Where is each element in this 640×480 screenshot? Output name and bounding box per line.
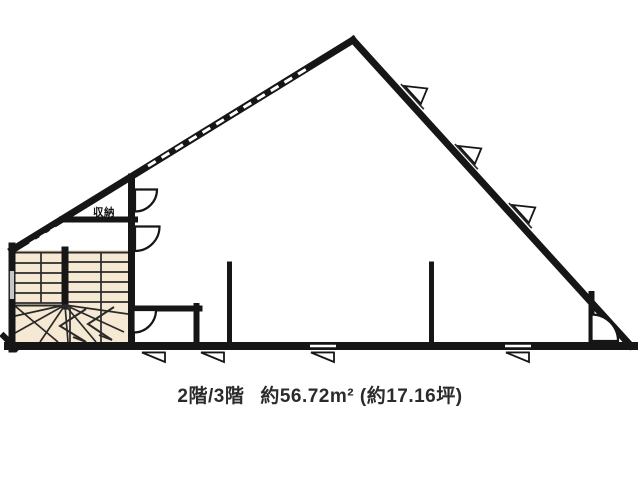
vent-triangle <box>509 192 544 228</box>
closet-label: 収納 <box>93 206 115 219</box>
caption: 2階/3階約56.72m² (約17.16坪) <box>0 381 640 408</box>
vent-triangle <box>401 73 436 109</box>
window-marker <box>311 353 334 363</box>
door-arc-right-room <box>592 315 619 342</box>
caption-floor: 2階/3階 <box>177 386 244 407</box>
door-arc-nook <box>134 310 157 333</box>
floor-plan: 収納 <box>0 0 640 480</box>
window-marker <box>506 353 529 363</box>
caption-area: 約56.72m² (約17.16坪) <box>260 386 462 407</box>
window-marker <box>142 353 165 363</box>
doors <box>134 190 619 342</box>
right-wall-vent-triangles <box>401 73 544 228</box>
door-arc-closet <box>135 190 157 212</box>
vent-triangle <box>455 133 490 169</box>
floorplan-canvas: 収納 2階/3階約56.72m² (約17.16坪) <box>0 0 640 480</box>
window-marker <box>201 353 224 363</box>
door-arc-hall <box>135 227 160 252</box>
